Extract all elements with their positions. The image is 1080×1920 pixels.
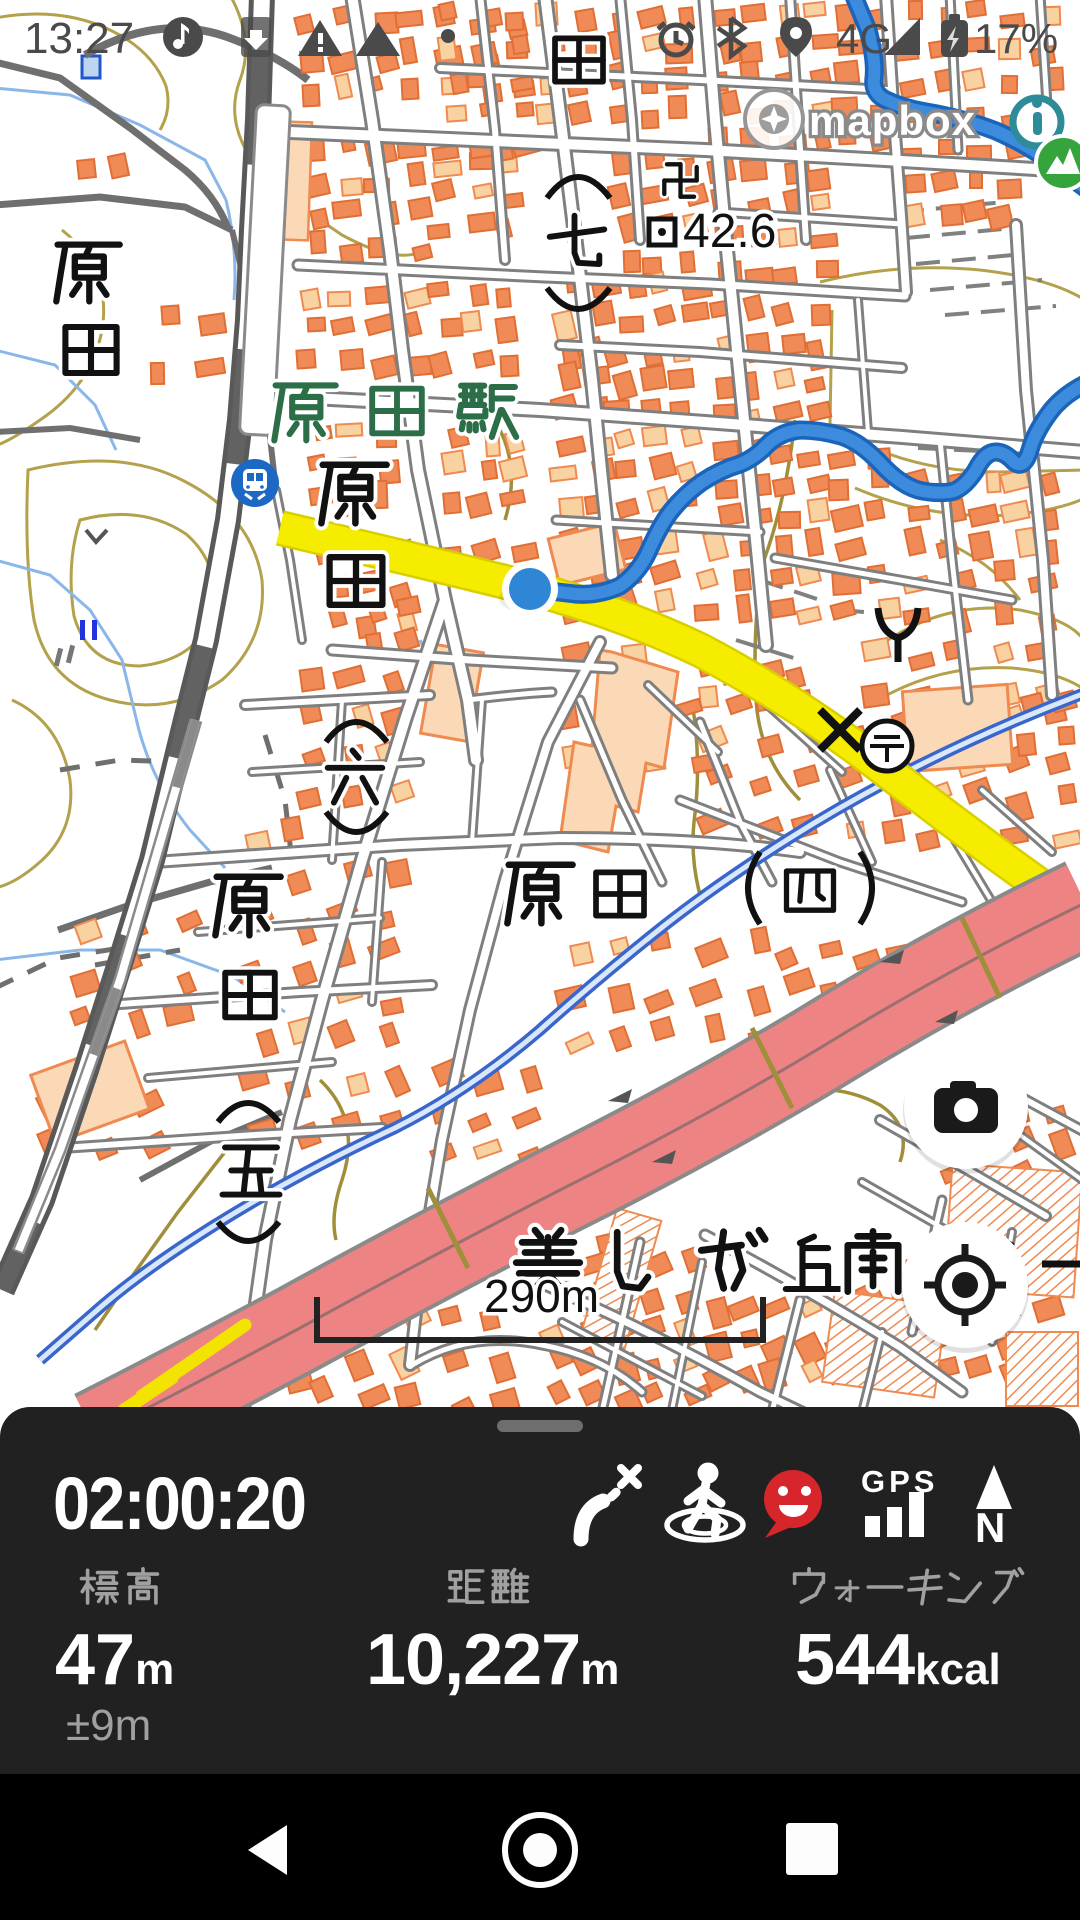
svg-text:mapbox: mapbox — [809, 97, 976, 144]
svg-text:±9m: ±9m — [66, 1701, 151, 1750]
svg-text:17%: 17% — [974, 15, 1058, 62]
svg-text:4G: 4G — [836, 15, 892, 62]
svg-text:13:27: 13:27 — [24, 14, 134, 63]
svg-text:290m: 290m — [484, 1270, 599, 1322]
svg-text:544kcal: 544kcal — [795, 1620, 1001, 1700]
svg-text:GPS: GPS — [861, 1464, 938, 1499]
svg-text:10,227m: 10,227m — [366, 1620, 618, 1700]
svg-text:42.6: 42.6 — [683, 205, 776, 258]
svg-text:N: N — [975, 1504, 1005, 1551]
svg-text:47m: 47m — [55, 1620, 174, 1700]
